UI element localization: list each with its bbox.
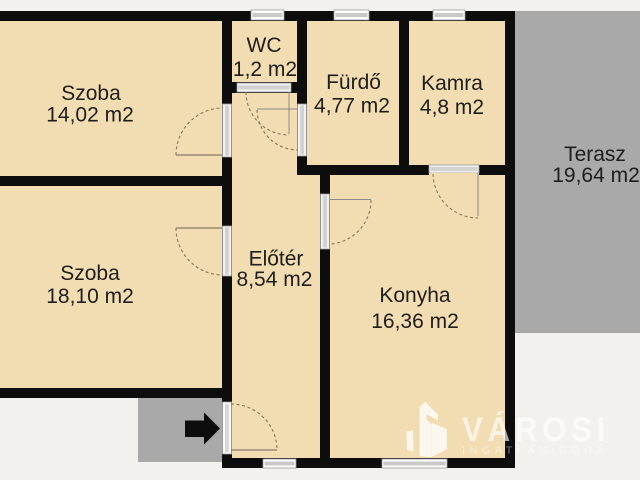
svg-text:19,64 m2: 19,64 m2 [552, 164, 640, 187]
svg-text:INGATLANIRODA: INGATLANIRODA [462, 446, 608, 457]
svg-text:Kamra: Kamra [421, 72, 483, 95]
svg-text:WC: WC [247, 34, 282, 57]
svg-text:Terasz: Terasz [564, 143, 626, 166]
svg-text:1,2 m2: 1,2 m2 [233, 58, 297, 81]
svg-text:4,8 m2: 4,8 m2 [420, 96, 484, 119]
svg-text:4,77 m2: 4,77 m2 [314, 95, 390, 118]
svg-text:VÁROSI: VÁROSI [462, 411, 610, 449]
svg-text:Szoba: Szoba [61, 82, 121, 105]
svg-text:16,36 m2: 16,36 m2 [371, 310, 459, 333]
svg-text:Konyha: Konyha [379, 284, 451, 307]
svg-text:Fürdő: Fürdő [326, 71, 381, 94]
svg-text:14,02 m2: 14,02 m2 [46, 104, 134, 127]
svg-text:Szoba: Szoba [60, 262, 120, 285]
svg-text:18,10 m2: 18,10 m2 [46, 285, 134, 308]
svg-text:8,54 m2: 8,54 m2 [237, 268, 313, 291]
